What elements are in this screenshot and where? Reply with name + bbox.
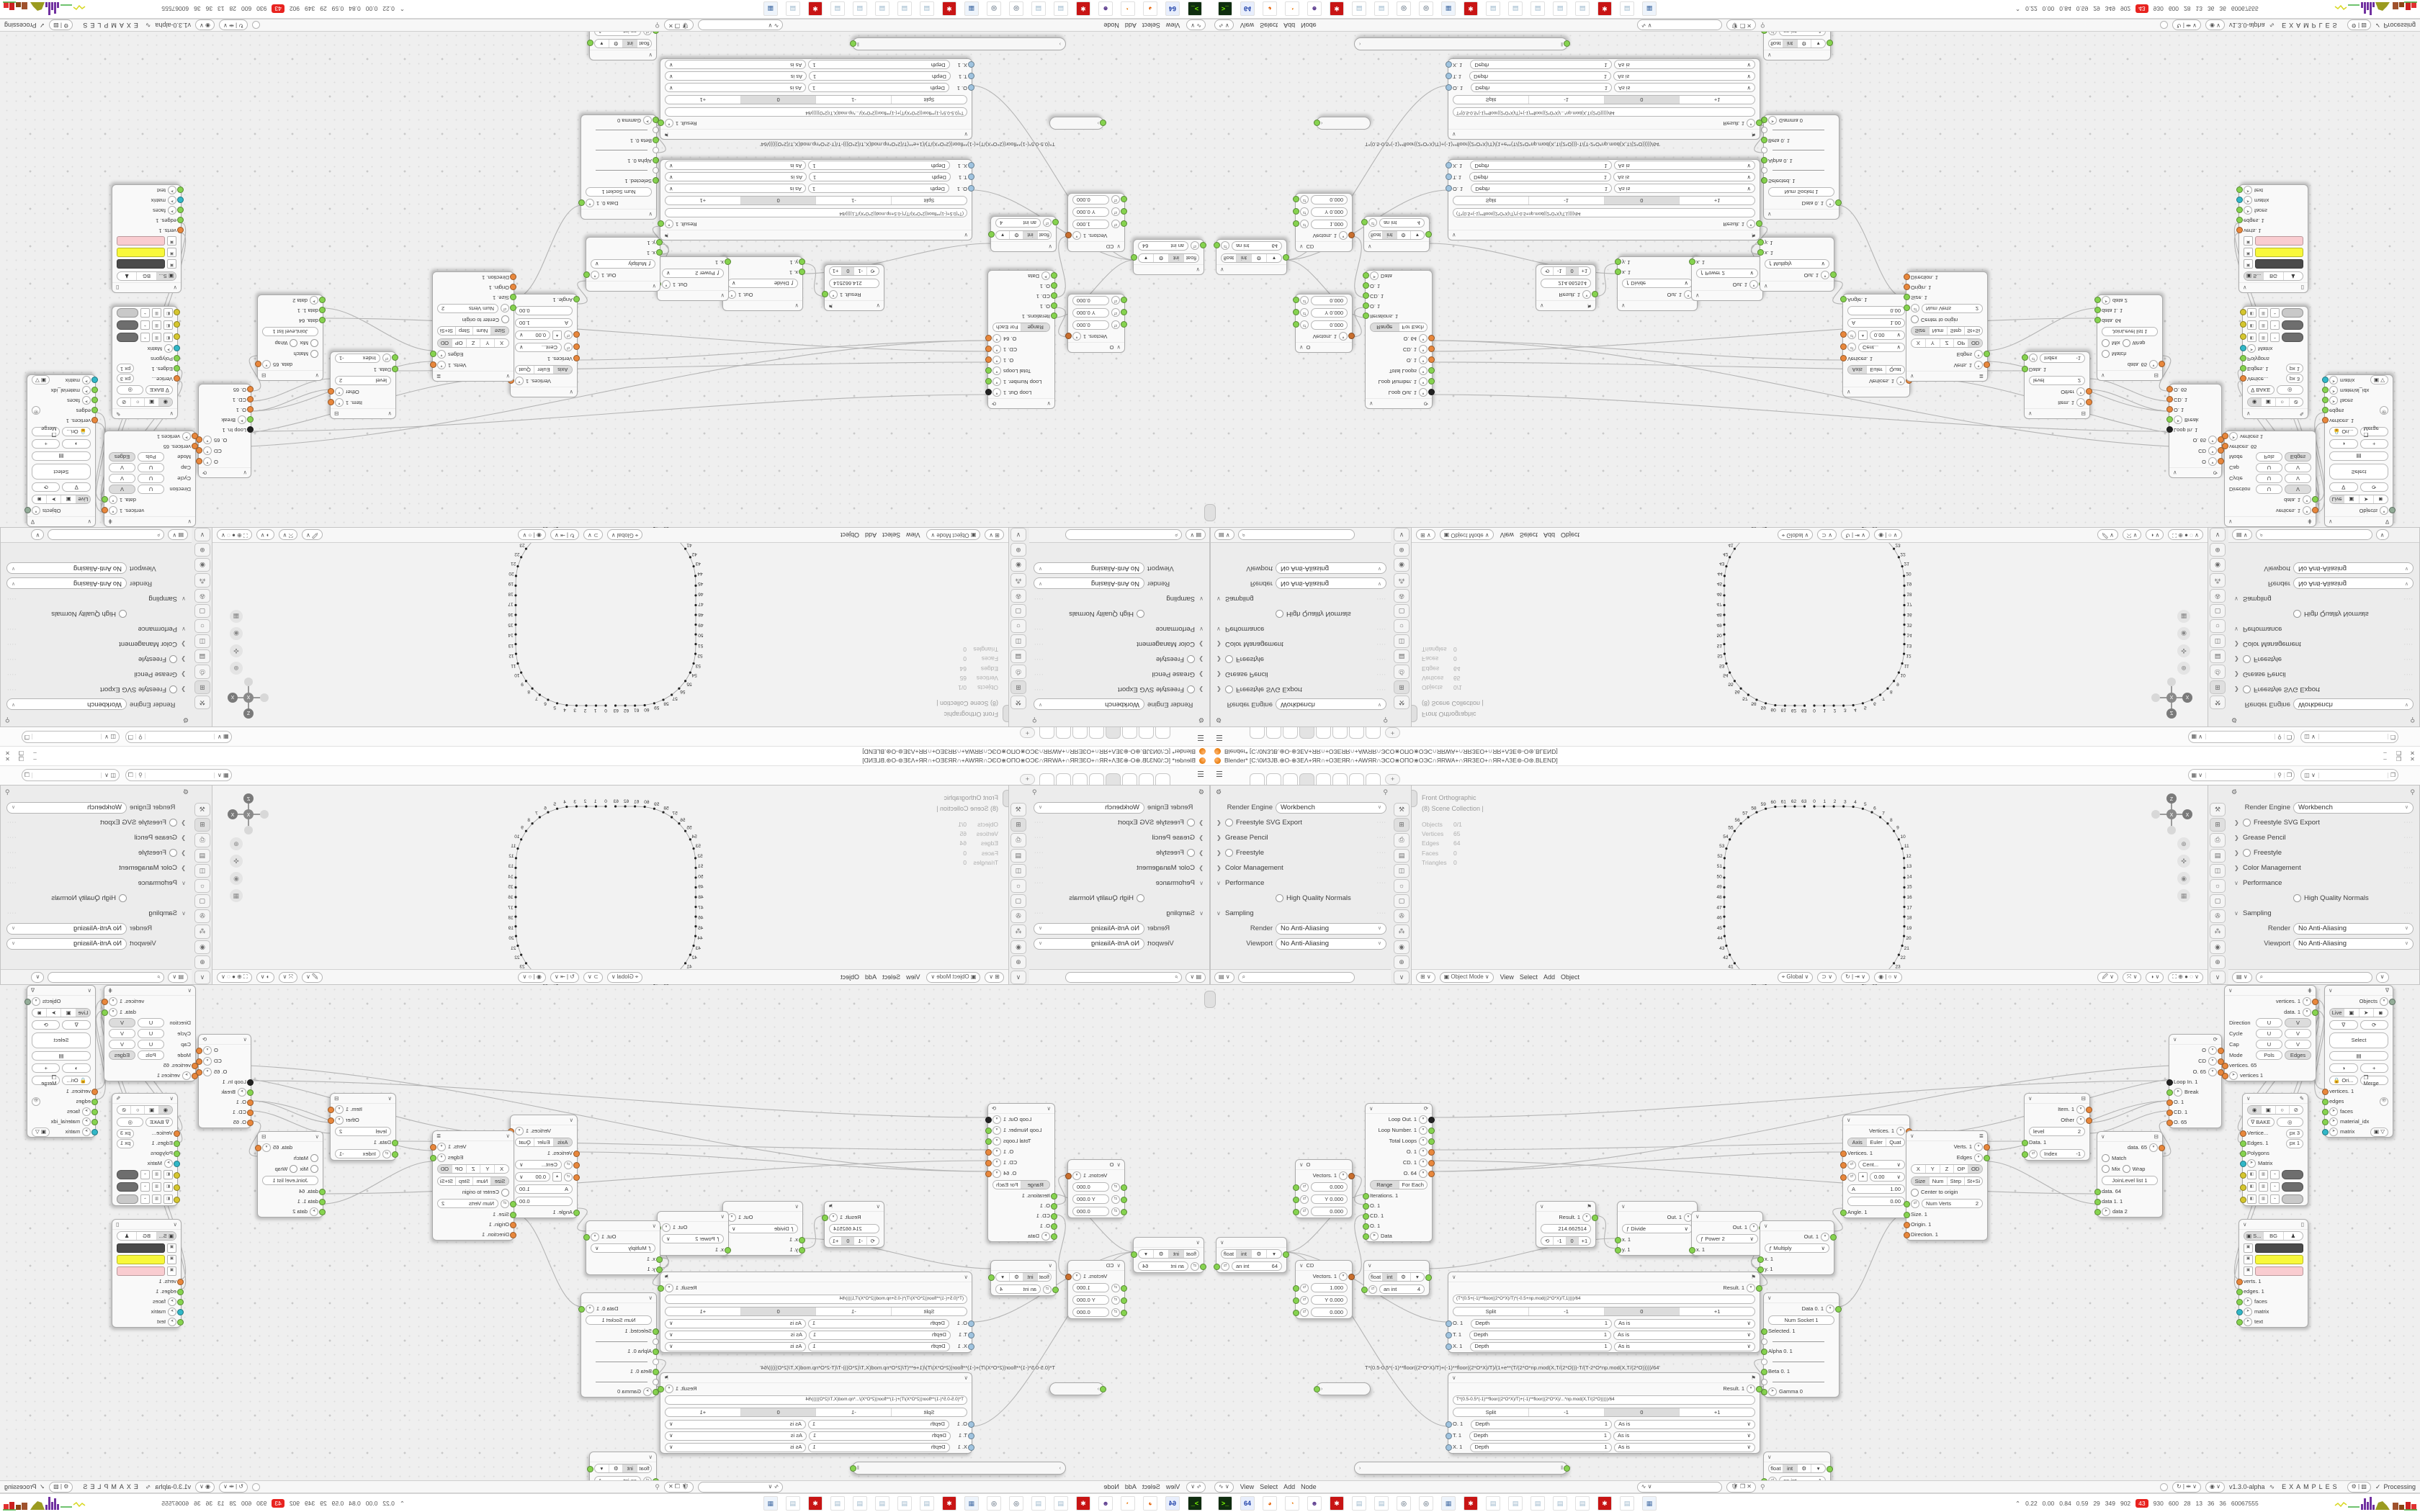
taskbar-icon-notepad[interactable]: ▤: [1531, 1496, 1545, 1511]
segment-button[interactable]: int: [1383, 1273, 1397, 1281]
node-row[interactable]: Total Loops▾: [1366, 1135, 1432, 1146]
node-row[interactable]: Angle. 1: [1843, 1207, 1909, 1218]
segment-button[interactable]: ➤: [2359, 1009, 2374, 1017]
node-row[interactable]: ⇄Y 0.000: [1296, 1193, 1352, 1205]
node-row[interactable]: Out. 1▾: [1760, 1231, 1834, 1242]
segment-button[interactable]: OP: [1954, 1165, 1968, 1173]
snapping-button[interactable]: ⊃ ∨: [1817, 972, 1837, 983]
node-row[interactable]: ⇄Cent...∨: [1843, 1158, 1909, 1171]
node-row[interactable]: SizeNumStepSt+Si: [1906, 1175, 1987, 1187]
socket[interactable]: [2222, 1063, 2228, 1069]
node-row[interactable]: Direction. 1: [1906, 1230, 1987, 1240]
node-row[interactable]: Origin. 1: [1906, 1220, 1987, 1230]
node-header[interactable]: ∨⊟: [2025, 1094, 2089, 1104]
node-vector-in-cd[interactable]: ∨CDVectors. 1▾⇄1.000⇄Y 0.000⇄0.000: [1295, 1260, 1353, 1319]
pin-icon[interactable]: ⚲: [2410, 789, 2415, 796]
node-row[interactable]: ƒ Divide∨: [1618, 1223, 1697, 1235]
node-row[interactable]: Edges. 1px 1: [2243, 1138, 2308, 1148]
node-row[interactable]: 0.00: [1843, 1195, 1909, 1207]
node-row[interactable]: Edges▾: [1906, 1152, 1987, 1163]
node-row[interactable]: x. 1: [1618, 1235, 1697, 1245]
node-row[interactable]: O. 64▾: [1366, 1168, 1432, 1179]
node-loop-out[interactable]: ∨⟳O▾CD▾O. 65▾Loop In. 1➤BreakO. 1CD. 1O.…: [2169, 1034, 2222, 1128]
socket[interactable]: [1827, 1466, 1833, 1472]
node-row[interactable]: Select: [2325, 1031, 2393, 1050]
socket[interactable]: [2222, 1073, 2228, 1079]
segment-button[interactable]: -1: [1529, 1408, 1605, 1416]
navigation-gizmo[interactable]: Z X X: [2148, 791, 2195, 837]
node-row[interactable]: Data. 1: [2025, 1138, 2089, 1148]
segment-button[interactable]: Euler: [1867, 1138, 1886, 1146]
node-row[interactable]: Result. 1▾: [1536, 1212, 1595, 1223]
node-row[interactable]: O. 1Depth1As is∨: [1448, 1418, 1760, 1430]
window-control-button[interactable]: –: [2380, 757, 2390, 762]
workspace-tab[interactable]: [1332, 773, 1348, 785]
node-row[interactable]: ⇄0.000: [1296, 1205, 1352, 1218]
node-row[interactable]: ➤material_idx: [2325, 1117, 2393, 1127]
node-row[interactable]: level2: [2025, 1125, 2089, 1138]
socket[interactable]: [2240, 1161, 2246, 1167]
node-header[interactable]: ∨: [1760, 1221, 1834, 1231]
node-row[interactable]: Polygons: [2243, 1148, 2308, 1158]
node-viewer-index[interactable]: ∨▯▣ S...BG♟▣▣▣verts. 1edges. 1➤faces➤mat…: [2238, 1219, 2308, 1328]
socket[interactable]: [2240, 1130, 2246, 1137]
tab-strip-collapse-icon[interactable]: ∨: [1394, 971, 1410, 984]
socket[interactable]: [1314, 1386, 1320, 1392]
socket[interactable]: [1761, 1359, 1767, 1365]
node-row[interactable]: ➤Data: [1366, 1231, 1432, 1241]
menu-node[interactable]: Node: [1299, 1484, 1319, 1490]
segment-button[interactable]: ▾: [1411, 1273, 1424, 1281]
socket[interactable]: [2166, 1099, 2173, 1106]
node-row[interactable]: ƒ Multiply∨: [1760, 1242, 1834, 1254]
node-row[interactable]: ➤vertices 1: [2225, 1071, 2316, 1081]
taskbar-icon-calculator[interactable]: ▦: [1642, 1496, 1657, 1511]
node-row[interactable]: Other▾: [2025, 1115, 2089, 1125]
properties-row-color-management[interactable]: ❯Color Management····: [1211, 860, 1392, 876]
socket[interactable]: [1756, 1285, 1762, 1292]
node-row[interactable]: O. 1: [1366, 1221, 1432, 1231]
socket[interactable]: [1293, 1297, 1299, 1304]
menu-select[interactable]: Select: [1518, 974, 1540, 981]
node-row[interactable]: X. 1Depth1As is∨: [1448, 1341, 1760, 1352]
node-row[interactable]: Vertices. 1: [1843, 1148, 1909, 1158]
node-row[interactable]: vertices. 65: [2225, 1061, 2316, 1071]
segment-button[interactable]: ▾: [1267, 1250, 1281, 1258]
node-header[interactable]: ∨: [1764, 1293, 1839, 1303]
socket[interactable]: [1840, 1162, 1847, 1169]
node-row[interactable]: O. 65: [2169, 1117, 2221, 1128]
segment-button[interactable]: ⚙: [1397, 1273, 1411, 1281]
node-row[interactable]: O. 65▾: [2169, 1066, 2221, 1077]
socket[interactable]: [1840, 1174, 1847, 1181]
socket[interactable]: [1428, 1171, 1435, 1177]
socket[interactable]: [1840, 1151, 1847, 1157]
menu-object[interactable]: Object: [1559, 974, 1582, 981]
node-row[interactable]: O. 1: [2169, 1097, 2221, 1107]
node-header[interactable]: ∨⚑: [1536, 1202, 1595, 1212]
socket[interactable]: [1363, 1223, 1369, 1230]
node-row[interactable]: CD. 1: [1366, 1211, 1432, 1221]
segment-button[interactable]: int: [1237, 1250, 1252, 1258]
node-row[interactable]: T*(0.5-0.5*(-1)**floor((2*O*X)/T)+(-1)**…: [1448, 1394, 1760, 1406]
properties-row-color-management[interactable]: ❯Color Management····: [2228, 860, 2419, 876]
node-header[interactable]: ∨: [1843, 1115, 1909, 1125]
properties-row-viewport[interactable]: ViewportNo Anti-Aliasing∨: [2228, 936, 2419, 951]
workspace-tab[interactable]: [1349, 773, 1364, 785]
node-row[interactable]: Match: [2097, 1153, 2162, 1164]
node-row[interactable]: Loop In. 1: [2169, 1077, 2221, 1087]
node-row[interactable]: ➤matrix▣ ▽: [2325, 1127, 2393, 1137]
socket[interactable]: [1348, 1173, 1355, 1179]
properties-tab-icon[interactable]: ☼: [1394, 879, 1410, 893]
segment-button[interactable]: -1: [1554, 1237, 1566, 1245]
segment-button[interactable]: ○: [2276, 1106, 2290, 1114]
display-filter-button[interactable]: ▤ ∨: [2232, 972, 2252, 983]
socket[interactable]: [1446, 1332, 1452, 1338]
socket[interactable]: [2086, 1117, 2092, 1124]
segment-button[interactable]: ◙: [2374, 1009, 2388, 1017]
node-header[interactable]: ∨⟳: [2169, 1035, 2221, 1045]
socket[interactable]: [2236, 1319, 2243, 1326]
node-row[interactable]: data. 65▾: [2097, 1142, 2162, 1153]
node-formula-2[interactable]: ∨⚑Result. 1▾T*(0.5-0.5*(-1)**floor((2*O*…: [1448, 1372, 1760, 1454]
node-row[interactable]: AxisEulerQuat: [1843, 1136, 1909, 1148]
segment-button[interactable]: -1: [1529, 1308, 1605, 1315]
properties-row-freestyle[interactable]: ❯Freestyle····: [2228, 845, 2419, 860]
workspace-tab[interactable]: [1316, 773, 1331, 785]
node-header[interactable]: ∨∇: [2325, 986, 2393, 996]
segment-button[interactable]: ⚙: [1252, 1250, 1267, 1258]
node-row[interactable]: CD. 1: [2169, 1107, 2221, 1117]
node-row[interactable]: ◧▥⌁: [2243, 1169, 2308, 1181]
node-row[interactable]: ▤: [2325, 1050, 2393, 1062]
node-row[interactable]: ➤faces: [2239, 1297, 2308, 1307]
socket[interactable]: [2322, 1089, 2329, 1095]
socket[interactable]: [1761, 1379, 1767, 1385]
node-row[interactable]: ➤data 2: [2097, 1207, 2162, 1217]
node-row[interactable]: ➤Matrix: [2243, 1158, 2308, 1169]
properties-tab-icon[interactable]: ⁂: [1394, 924, 1410, 938]
socket[interactable]: [1363, 1213, 1369, 1220]
socket[interactable]: [2312, 999, 2318, 1005]
socket[interactable]: [2022, 1151, 2028, 1158]
node-row[interactable]: ∇ BAKE◎: [2243, 1116, 2308, 1128]
node-row[interactable]: Verts. 1▾: [1906, 1141, 1987, 1152]
node-rotate[interactable]: ∨Vertices. 1▾AxisEulerQuatVertices. 1⇄Ce…: [1842, 1115, 1910, 1218]
node-uv-connection[interactable]: ∨⋕vertices. 1▾data. 1▾DirectionUVCycleUV…: [2224, 985, 2316, 1081]
socket[interactable]: [1689, 1247, 1695, 1254]
socket[interactable]: [1761, 1349, 1767, 1355]
properties-tab-icon[interactable]: ▢: [2210, 894, 2226, 908]
node-row[interactable]: ➤Gamma 0: [1764, 1387, 1839, 1397]
node-row[interactable]: ⇄an int4: [1364, 1283, 1429, 1295]
node-row[interactable]: MixWrap: [2097, 1164, 2162, 1174]
node-row[interactable]: DirectionUV: [2225, 1017, 2316, 1028]
socket[interactable]: [2022, 1140, 2028, 1146]
segment-button[interactable]: ⊘: [2290, 1106, 2303, 1114]
socket[interactable]: [1348, 1274, 1355, 1280]
viewport-nav-button[interactable]: ◉: [2177, 872, 2190, 885]
node-row[interactable]: ⇄an int1: [1764, 1475, 1830, 1480]
node-row[interactable]: Beta 0. 1: [1764, 1367, 1839, 1377]
socket[interactable]: [1293, 1209, 1299, 1215]
node-row[interactable]: ▣ S...BG♟: [2239, 1230, 2308, 1242]
socket[interactable]: [2312, 1009, 2318, 1016]
properties-tab-icon[interactable]: ▤: [2210, 849, 2226, 863]
node-a-number-4[interactable]: ∨floatint⚙▾⇄an int4: [1363, 1260, 1430, 1296]
node-row[interactable]: Vectors. 1▾: [1296, 1271, 1352, 1282]
segment-button[interactable]: ♟: [2284, 1232, 2303, 1240]
node-row[interactable]: y. 1: [1618, 1245, 1697, 1255]
socket[interactable]: [1363, 1203, 1369, 1210]
socket[interactable]: [1761, 1328, 1767, 1335]
socket[interactable]: [2322, 1129, 2329, 1135]
socket[interactable]: [1293, 1197, 1299, 1203]
node-row[interactable]: vertices. 1▾: [2225, 996, 2316, 1007]
node-list-item[interactable]: ∨⊟Item. 1▾Other▾level2Data. 1⇄Index-1: [2024, 1093, 2090, 1161]
socket[interactable]: [1293, 1285, 1299, 1292]
segment-button[interactable]: ▣ S...: [2244, 1232, 2264, 1240]
node-row[interactable]: O. 1▾: [1366, 1146, 1432, 1157]
socket[interactable]: [1564, 1465, 1570, 1472]
node-row[interactable]: Live▣➤◙: [2325, 1007, 2393, 1019]
node-row[interactable]: CD. 1▾: [1366, 1157, 1432, 1168]
socket[interactable]: [2159, 1145, 2165, 1151]
node-row[interactable]: data. 1▾: [2225, 1007, 2316, 1017]
node-row[interactable]: Loop Out. 1▾: [1366, 1114, 1432, 1125]
socket[interactable]: [1904, 1201, 1910, 1207]
tree-selector[interactable]: ∿ ∨: [1637, 1482, 1723, 1493]
segment-button[interactable]: ◉: [2248, 1106, 2262, 1114]
taskbar-icon-terminal[interactable]: >_: [1218, 1496, 1232, 1511]
socket[interactable]: [2240, 1184, 2246, 1191]
segment-button[interactable]: ▾: [1811, 1464, 1825, 1472]
properties-row-sampling[interactable]: ∨Sampling····: [1211, 906, 1392, 921]
node-row[interactable]: Split-10+1: [1448, 1305, 1760, 1318]
workspace-tab[interactable]: [1250, 773, 1265, 785]
node-a-number-1[interactable]: ∨floatint⚙▾⇄an int1: [1763, 1452, 1831, 1480]
segment-button[interactable]: Range: [1371, 1181, 1399, 1189]
socket[interactable]: [1984, 1144, 1990, 1151]
socket[interactable]: [1830, 1234, 1837, 1241]
node-header[interactable]: ∨⋕: [2225, 986, 2316, 996]
node-row[interactable]: JoinLevel list 1: [2097, 1174, 2162, 1187]
node-header[interactable]: ∨: [1618, 1202, 1697, 1212]
pin-icon[interactable]: ⚲: [1760, 1484, 1765, 1490]
socket[interactable]: [1757, 1256, 1764, 1263]
properties-row-render[interactable]: RenderNo Anti-Aliasing∨: [1211, 921, 1392, 936]
node-row[interactable]: Iterations. 1: [1366, 1191, 1432, 1201]
node-header[interactable]: ∨: [1216, 1238, 1286, 1248]
node-row[interactable]: ◉▣○⊘: [2243, 1104, 2308, 1116]
node-row[interactable]: Num Socket 1: [1764, 1314, 1839, 1326]
socket[interactable]: [1446, 1344, 1452, 1350]
socket[interactable]: [1293, 1184, 1299, 1191]
node-row[interactable]: T. 1Depth1As is∨: [1448, 1430, 1760, 1441]
node-header[interactable]: ∨: [1364, 1261, 1429, 1271]
taskbar-icon-firefox[interactable]: ◕: [1263, 1496, 1277, 1511]
update-buttons[interactable]: ↻ | ⇹ ∨: [2172, 1482, 2201, 1493]
window-control-button[interactable]: ✕: [2408, 757, 2417, 762]
overlays-button[interactable]: ⤧ ∨: [2123, 972, 2141, 983]
taskbar-icon-red-gear[interactable]: ✱: [1597, 1496, 1612, 1511]
socket[interactable]: [1293, 1310, 1299, 1316]
examples-menu[interactable]: EXAMPLES: [2282, 1484, 2340, 1490]
node-math-divide[interactable]: ∨Out. 1▾ƒ Divide∨x. 1y. 1: [1617, 1201, 1698, 1256]
node-row[interactable]: floatint⚙▾: [1764, 1462, 1830, 1475]
socket[interactable]: [1214, 1264, 1220, 1270]
socket[interactable]: [2236, 1289, 2243, 1295]
segment-button[interactable]: float: [1369, 1273, 1383, 1281]
node-row[interactable]: Result. 1▾: [1448, 1282, 1760, 1293]
properties-tab-icon[interactable]: ⊞: [1394, 818, 1410, 832]
node-list-join[interactable]: ∨⊟data. 65▾MatchMixWrapJoinLevel list 1d…: [2097, 1131, 2163, 1218]
socket[interactable]: [1835, 1306, 1842, 1313]
node-row[interactable]: Data 0. 1▾: [1764, 1303, 1839, 1314]
socket[interactable]: [2389, 999, 2396, 1005]
segment-button[interactable]: +1: [1579, 1237, 1590, 1245]
node-row[interactable]: ⇄0.000: [1296, 1181, 1352, 1193]
properties-row-freestyle[interactable]: ❯Freestyle····: [1211, 845, 1392, 860]
socket[interactable]: [1904, 1212, 1910, 1218]
segment-button[interactable]: ▣: [2262, 1106, 2275, 1114]
node-row[interactable]: ◧▥⌁: [2243, 1181, 2308, 1193]
taskbar-icon-notepad[interactable]: ▤: [1620, 1496, 1634, 1511]
node-row[interactable]: edges👁: [2325, 1097, 2393, 1107]
taskbar-icon-red-gear[interactable]: ✱: [1330, 1496, 1344, 1511]
node-row[interactable]: Split-10+1: [1448, 1406, 1760, 1418]
node-row[interactable]: ➤text: [2239, 1317, 2308, 1327]
node-row[interactable]: Result. 1▾: [1448, 1383, 1760, 1394]
socket[interactable]: [1615, 1237, 1621, 1243]
properties-row-sampling[interactable]: ∨Sampling····: [2228, 906, 2419, 921]
properties-tab-icon[interactable]: ▤: [1394, 849, 1410, 863]
node-loop-in[interactable]: ∨⟳Loop Out. 1▾Loop Number. 1▾Total Loops…: [1365, 1103, 1433, 1242]
socket[interactable]: [2240, 1172, 2246, 1179]
node-row[interactable]: Alpha 0. 1: [1764, 1346, 1839, 1356]
socket[interactable]: [1446, 1433, 1452, 1439]
tree-buttons[interactable]: 🛡 ❐ ✕: [1726, 1482, 1755, 1493]
socket[interactable]: [2240, 1151, 2246, 1157]
node-row[interactable]: [1764, 1336, 1839, 1346]
node-row[interactable]: ➤matrix: [2239, 1307, 2308, 1317]
socket[interactable]: [2166, 1120, 2173, 1126]
segment-button[interactable]: 0: [1605, 1408, 1680, 1416]
socket[interactable]: [1761, 1338, 1767, 1345]
socket[interactable]: [2322, 1109, 2329, 1115]
properties-tab-icon[interactable]: ⎙: [2210, 833, 2226, 847]
node-row[interactable]: ➤Break: [2169, 1087, 2221, 1097]
shading-mode-buttons[interactable]: ⛶ ⊕ ● ◌ ∨: [2168, 972, 2203, 983]
taskbar-icon-notepad[interactable]: ▤: [1575, 1496, 1590, 1511]
view-layer-selector[interactable]: ◫ ∨❐: [2300, 769, 2398, 781]
node-row[interactable]: [1764, 1356, 1839, 1367]
node-row[interactable]: ModePolsEdges: [2225, 1050, 2316, 1061]
properties-tab-icon[interactable]: ◉: [1394, 940, 1410, 954]
properties-tab-icon[interactable]: ☼: [2210, 879, 2226, 893]
segment-button[interactable]: float: [1222, 1250, 1237, 1258]
node-row[interactable]: Out. 1▾: [1618, 1212, 1697, 1223]
socket[interactable]: [1428, 1138, 1435, 1145]
node-row[interactable]: ⇄▲0.00∨: [1843, 1171, 1909, 1183]
node-row[interactable]: ∇⟳: [2325, 1019, 2393, 1031]
workspace-tab[interactable]: [1266, 773, 1281, 785]
segment-button[interactable]: Split: [1453, 1408, 1529, 1416]
menu-view[interactable]: View: [1498, 974, 1516, 981]
node-row[interactable]: O▾: [2169, 1045, 2221, 1056]
socket[interactable]: [1428, 1160, 1435, 1166]
menu-add[interactable]: Add: [1541, 974, 1557, 981]
properties-tab-icon[interactable]: ⚒: [2210, 803, 2226, 816]
socket[interactable]: [2322, 1119, 2329, 1125]
taskbar-icon-gimp[interactable]: ☻: [1307, 1496, 1322, 1511]
properties-row-grease-pencil[interactable]: ❯Grease Pencil····: [2228, 830, 2419, 845]
node-row[interactable]: XYZOPOD: [1906, 1163, 1987, 1175]
node-row[interactable]: ⇄an int64: [1216, 1260, 1286, 1272]
taskbar-icon-notepad[interactable]: ▤: [1508, 1496, 1523, 1511]
workspace-tab[interactable]: [1299, 773, 1314, 785]
socket[interactable]: [1428, 1149, 1435, 1156]
workspace-tab[interactable]: [1283, 773, 1298, 785]
segment-button[interactable]: Quat: [1886, 1138, 1904, 1146]
node-row[interactable]: x. 1: [1692, 1245, 1762, 1255]
node-header[interactable]: ∨O: [1296, 1160, 1352, 1170]
socket[interactable]: [2166, 1110, 2173, 1116]
socket[interactable]: [2218, 1048, 2224, 1054]
node-row[interactable]: Vertice...px 3: [2243, 1128, 2308, 1138]
properties-tab-icon[interactable]: ◉: [2210, 940, 2226, 954]
show-gizmo-button[interactable]: 🖉 ∨: [2097, 972, 2118, 983]
taskbar-icon-red-gear[interactable]: ✱: [1464, 1496, 1478, 1511]
socket[interactable]: [2094, 1199, 2101, 1205]
socket[interactable]: [2086, 1107, 2092, 1113]
node-row[interactable]: RangeFor Each: [1366, 1179, 1432, 1191]
node-row[interactable]: [1764, 1377, 1839, 1387]
properties-row-high-quality-normals[interactable]: High Quality Normals: [2228, 891, 2419, 906]
properties-row-freestyle-svg-export[interactable]: ❯Freestyle SVG Export····: [2228, 815, 2419, 830]
properties-tab-icon[interactable]: ⊕: [2210, 955, 2226, 969]
properties-row-performance[interactable]: ∨Performance····: [1211, 876, 1392, 891]
node-row[interactable]: A1.00: [1843, 1183, 1909, 1195]
properties-tab-icon[interactable]: ◫: [2210, 864, 2226, 878]
node-row[interactable]: ➤faces: [2325, 1107, 2393, 1117]
tab-strip-collapse-icon[interactable]: ∨: [2210, 971, 2226, 984]
socket[interactable]: [1592, 1215, 1598, 1221]
node-row[interactable]: ⇄Num Verts2: [1906, 1197, 1987, 1210]
hamburger-menu-icon[interactable]: ☰: [1216, 771, 1225, 779]
socket[interactable]: [1363, 1233, 1369, 1240]
node-math-multiply[interactable]: ∨Out. 1▾ƒ Multiply∨x. 1y. 1: [1760, 1220, 1834, 1275]
node-row[interactable]: Size. 1: [1906, 1210, 1987, 1220]
taskbar-icon-notepad[interactable]: ▤: [1486, 1496, 1500, 1511]
node-row[interactable]: verts. 1: [2239, 1277, 2308, 1287]
node-header[interactable]: ∨▯: [2239, 1220, 2308, 1230]
viewport-nav-button[interactable]: ⊕: [2177, 837, 2190, 850]
socket[interactable]: [1361, 1287, 1368, 1293]
socket[interactable]: [1446, 1444, 1452, 1451]
menu-view[interactable]: View: [1238, 1484, 1256, 1490]
socket[interactable]: [1428, 1128, 1435, 1134]
segment-button[interactable]: ▣: [2344, 1009, 2359, 1017]
properties-tab-icon[interactable]: ✇: [2210, 909, 2226, 923]
node-header[interactable]: ∨✎: [2243, 1094, 2308, 1104]
node-row[interactable]: Loop Number. 1▾: [1366, 1125, 1432, 1135]
node-line[interactable]: ∨≣Verts. 1▾Edges▾XYZOPODSizeNumStepSt+Si…: [1906, 1130, 1988, 1241]
node-header[interactable]: ∨: [1764, 1452, 1830, 1462]
segment-button[interactable]: For Each: [1399, 1181, 1428, 1189]
socket[interactable]: [2236, 1279, 2243, 1285]
